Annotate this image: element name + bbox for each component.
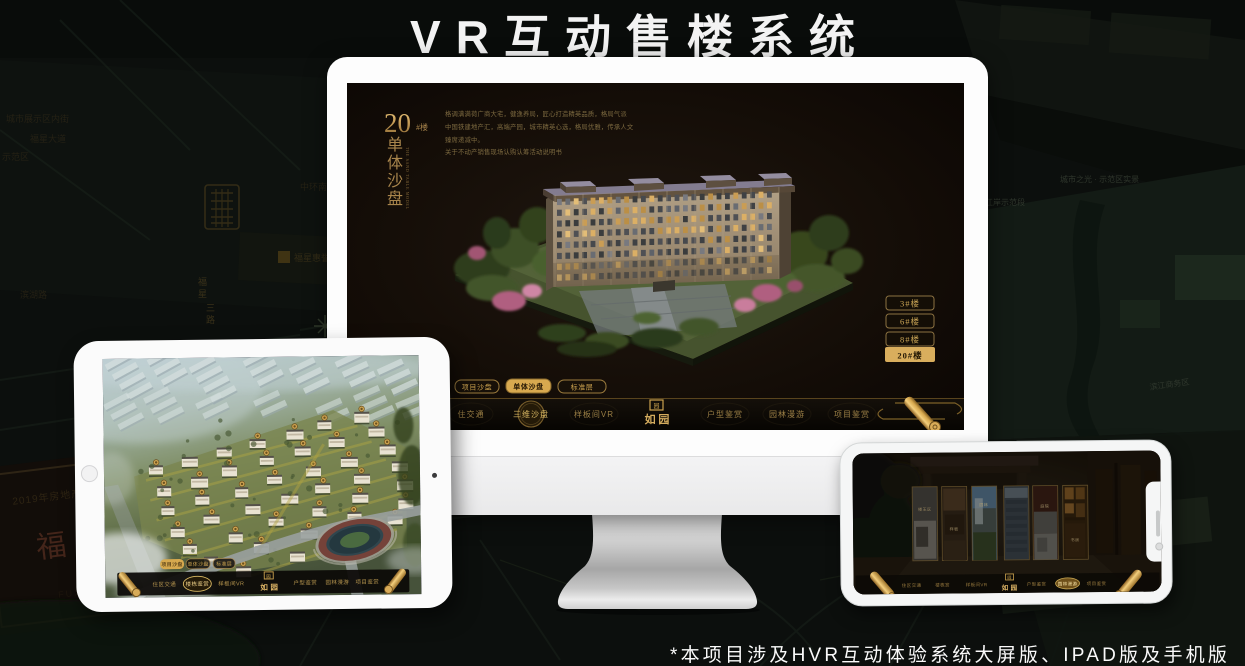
svg-text:关于不动产销售现场认购认筹活动说明书: 关于不动产销售现场认购认筹活动说明书 bbox=[445, 147, 562, 156]
svg-text:福: 福 bbox=[198, 276, 207, 287]
svg-text:6#楼: 6#楼 bbox=[900, 317, 920, 327]
svg-text:臻席递减中。: 臻席递减中。 bbox=[445, 135, 484, 144]
svg-text:中国铁建地产汇，高端产园，城市精英心选，格局优雅，传承人文: 中国铁建地产汇，高端产园，城市精英心选，格局优雅，传承人文 bbox=[445, 122, 634, 131]
svg-text:江岸示范段: 江岸示范段 bbox=[985, 197, 1025, 207]
svg-text:三维沙盘: 三维沙盘 bbox=[513, 409, 549, 419]
svg-text:园: 园 bbox=[653, 403, 659, 410]
svg-text:福星大道: 福星大道 bbox=[30, 133, 66, 144]
svg-text:体: 体 bbox=[387, 154, 403, 172]
svg-text:沙: 沙 bbox=[387, 173, 403, 190]
svg-text:THE SAND TABLE MODEL: THE SAND TABLE MODEL bbox=[405, 147, 410, 210]
svg-text:格调满满荷广商大宅，健逸养局，匠心打造精英品质，格局气派: 格调满满荷广商大宅，健逸养局，匠心打造精英品质，格局气派 bbox=[445, 109, 627, 118]
svg-text:标准层: 标准层 bbox=[216, 560, 232, 567]
svg-text:项目沙盘: 项目沙盘 bbox=[161, 561, 182, 568]
svg-text:园林漫游: 园林漫游 bbox=[769, 409, 805, 419]
svg-text:如 园: 如 园 bbox=[1002, 583, 1018, 592]
svg-text:单体沙盘: 单体沙盘 bbox=[187, 561, 208, 568]
svg-text:住交通: 住交通 bbox=[458, 409, 485, 419]
svg-text:#楼: #楼 bbox=[416, 122, 428, 132]
svg-text:样板间VR: 样板间VR bbox=[574, 409, 614, 419]
svg-text:盘: 盘 bbox=[387, 189, 403, 208]
svg-text:20#楼: 20#楼 bbox=[897, 351, 922, 361]
svg-text:城市展示区内街: 城市展示区内街 bbox=[6, 113, 69, 124]
svg-text:单体沙盘: 单体沙盘 bbox=[513, 382, 543, 391]
svg-text:20: 20 bbox=[384, 108, 411, 138]
svg-text:如 园: 如 园 bbox=[260, 582, 278, 592]
svg-text:8#楼: 8#楼 bbox=[900, 335, 920, 345]
svg-text:项目鉴赏: 项目鉴赏 bbox=[355, 578, 379, 586]
svg-text:3#楼: 3#楼 bbox=[900, 299, 920, 309]
svg-text:示范区: 示范区 bbox=[2, 151, 29, 162]
svg-text:三: 三 bbox=[206, 303, 215, 313]
svg-text:标准层: 标准层 bbox=[571, 383, 594, 392]
svg-text:项目沙盘: 项目沙盘 bbox=[462, 383, 492, 392]
svg-text:福星惠誉: 福星惠誉 bbox=[294, 252, 330, 263]
svg-text:城市之光 · 示范区实景: 城市之光 · 示范区实景 bbox=[1060, 174, 1139, 184]
svg-text:单: 单 bbox=[387, 136, 403, 154]
svg-text:星: 星 bbox=[198, 289, 207, 299]
svg-text:户型鉴赏: 户型鉴赏 bbox=[707, 409, 743, 419]
svg-text:楼栋鉴赏: 楼栋鉴赏 bbox=[185, 580, 209, 588]
svg-text:园: 园 bbox=[1007, 574, 1011, 580]
svg-text:项目鉴赏: 项目鉴赏 bbox=[834, 409, 870, 419]
svg-text:滨湖路: 滨湖路 bbox=[20, 289, 47, 300]
svg-text:路: 路 bbox=[206, 314, 215, 325]
svg-text:如 园: 如 园 bbox=[645, 412, 670, 426]
